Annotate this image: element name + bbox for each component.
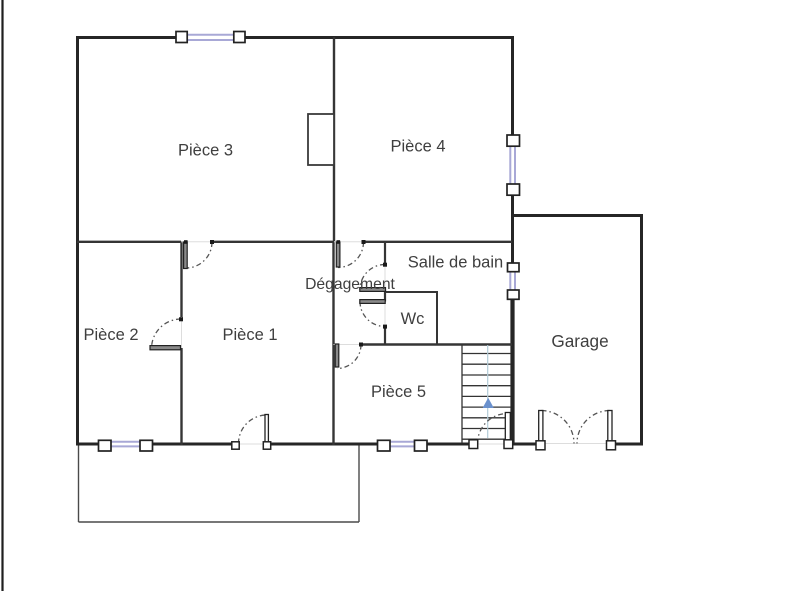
- svg-text:Dégagement: Dégagement: [305, 276, 395, 293]
- svg-text:Pièce 5: Pièce 5: [371, 383, 426, 401]
- svg-text:Pièce 2: Pièce 2: [83, 326, 138, 344]
- svg-text:Garage: Garage: [551, 331, 608, 351]
- svg-text:Salle de bain: Salle de bain: [408, 254, 503, 272]
- svg-text:Wc: Wc: [401, 310, 425, 328]
- svg-text:Pièce 1: Pièce 1: [222, 326, 277, 344]
- svg-text:Pièce 3: Pièce 3: [178, 142, 233, 160]
- svg-text:Pièce 4: Pièce 4: [390, 138, 445, 156]
